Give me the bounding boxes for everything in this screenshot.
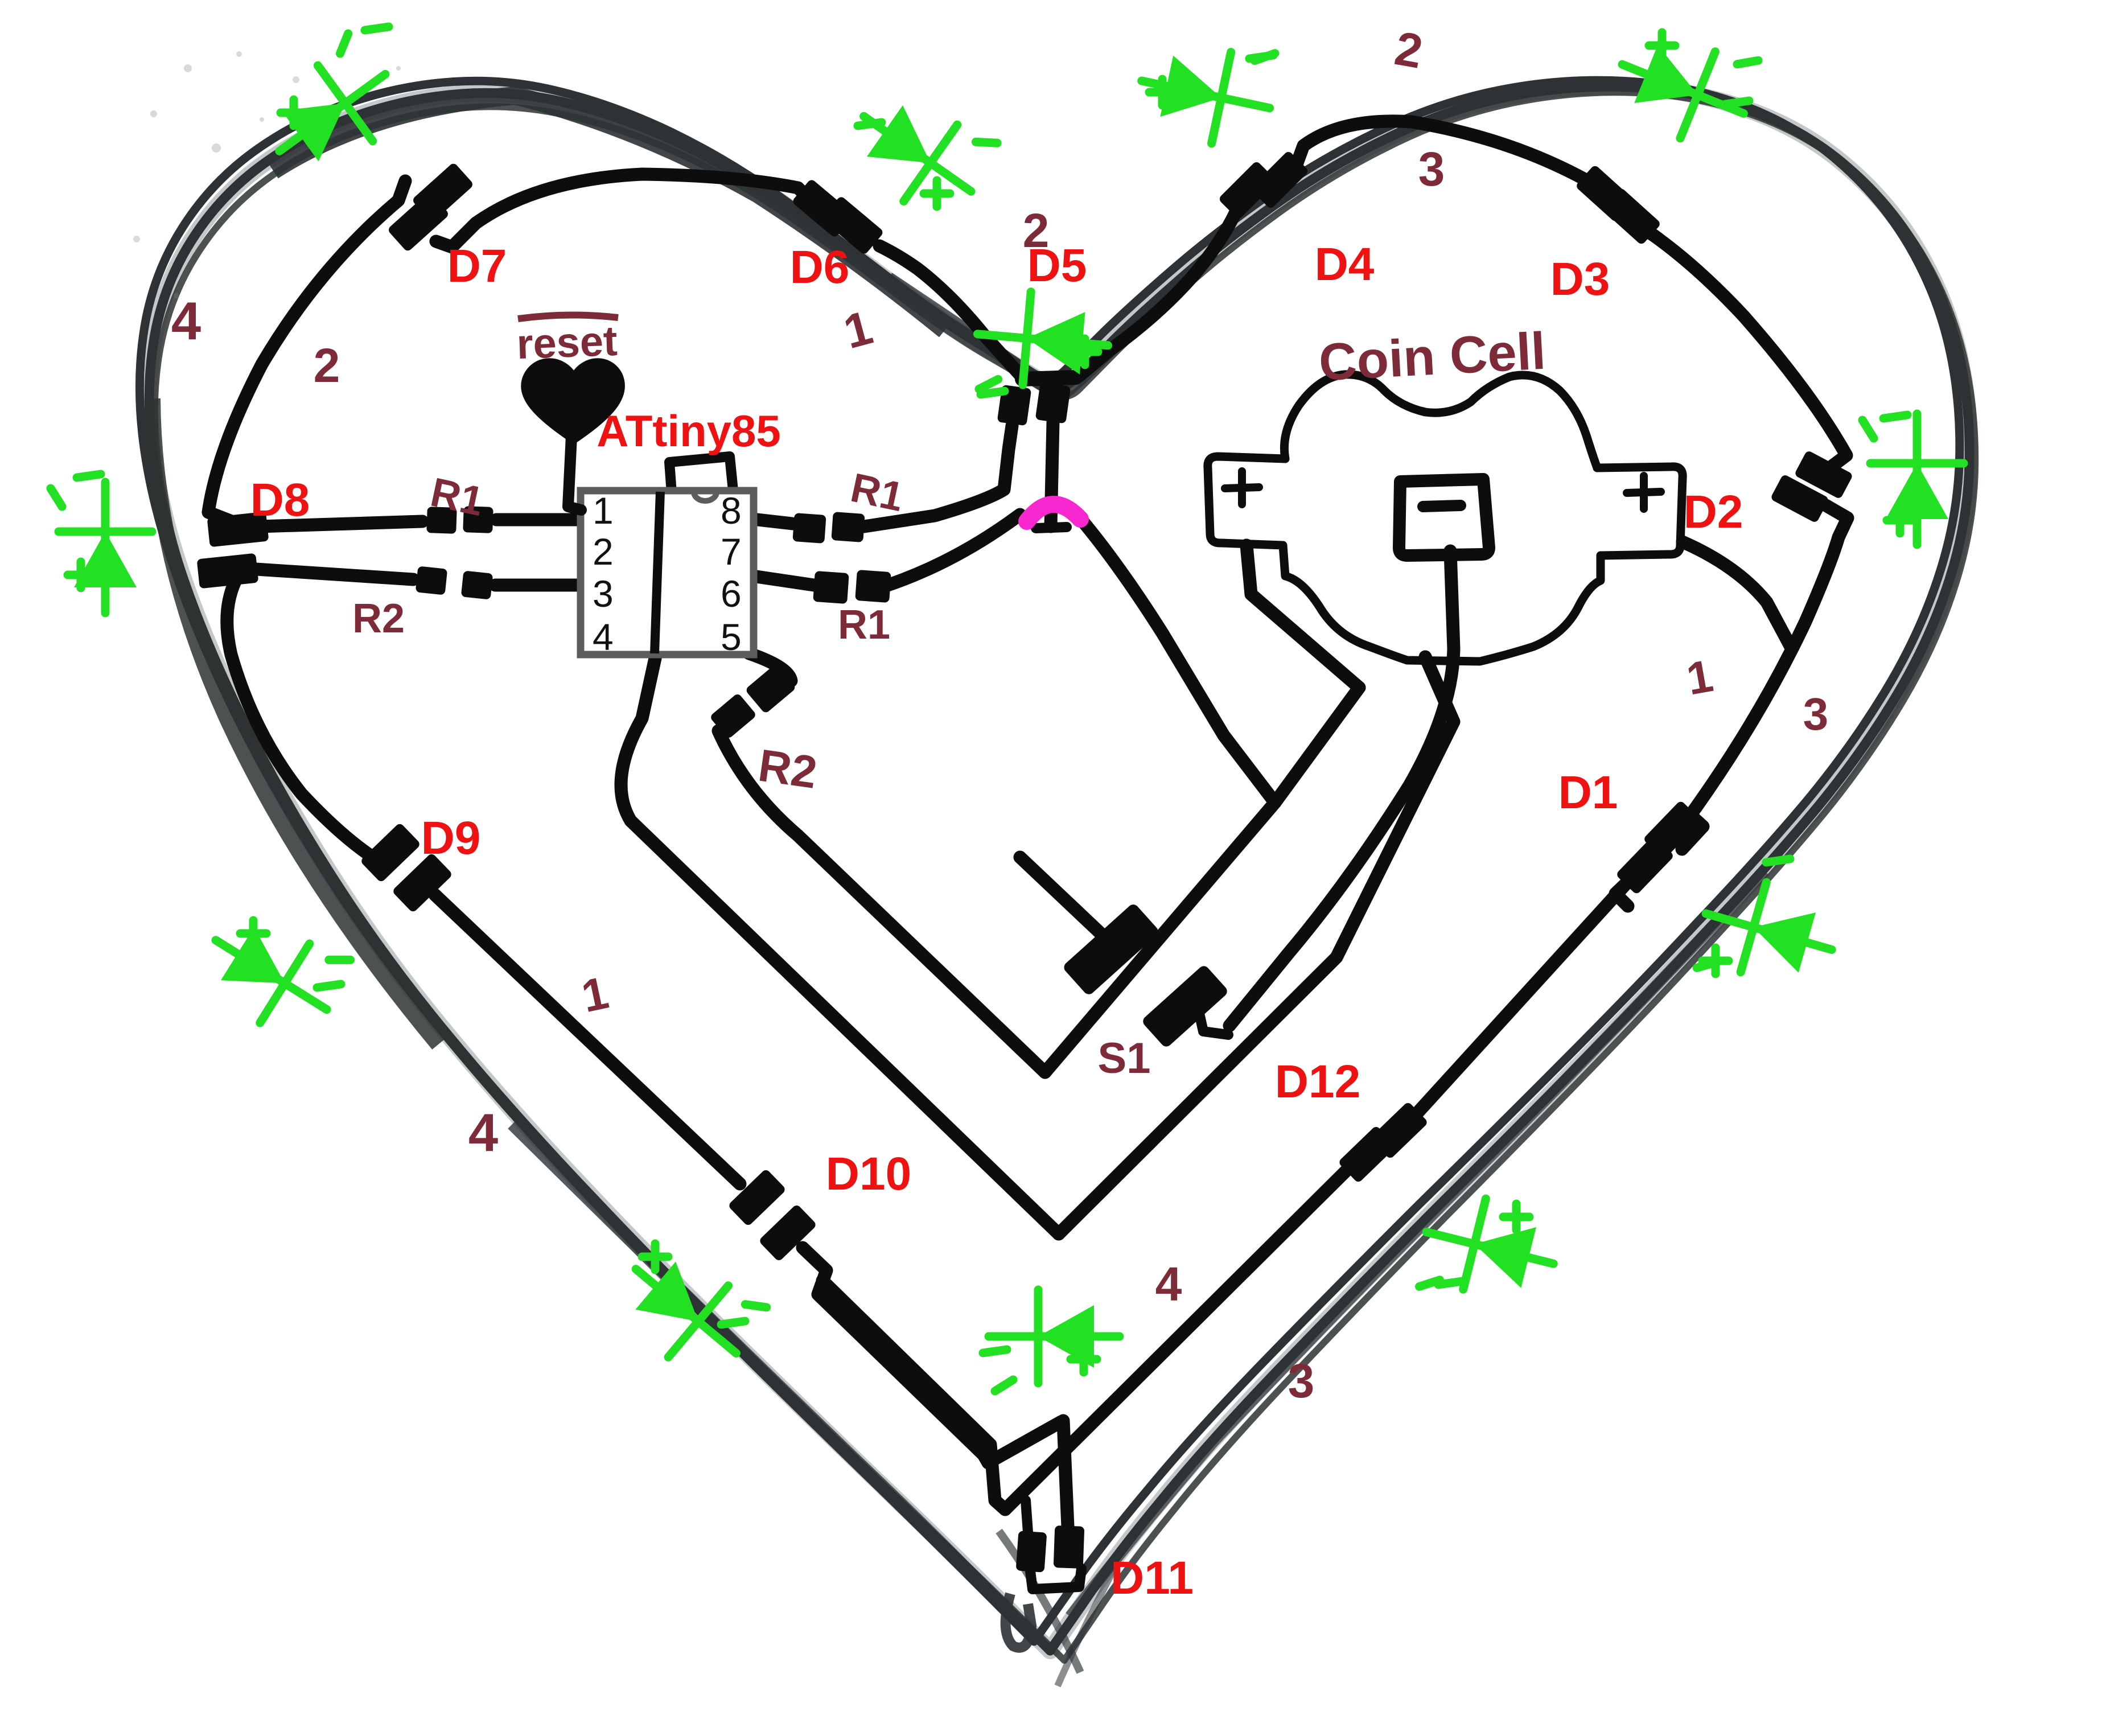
svg-text:R2: R2 xyxy=(755,740,820,798)
svg-text:6: 6 xyxy=(721,573,742,615)
svg-text:3: 3 xyxy=(1288,1354,1315,1408)
svg-text:D2: D2 xyxy=(1684,486,1743,538)
svg-text:reset: reset xyxy=(516,317,618,368)
svg-text:2: 2 xyxy=(1023,204,1050,257)
svg-text:Coin Cell: Coin Cell xyxy=(1318,322,1547,392)
svg-text:D6: D6 xyxy=(790,241,850,293)
svg-text:2: 2 xyxy=(593,530,614,573)
svg-text:D11: D11 xyxy=(1110,1552,1194,1604)
svg-text:8: 8 xyxy=(721,489,742,532)
svg-text:D1: D1 xyxy=(1558,767,1618,818)
svg-text:D12: D12 xyxy=(1275,1056,1360,1108)
svg-text:D7: D7 xyxy=(447,240,507,292)
svg-text:3: 3 xyxy=(593,573,614,615)
svg-text:4: 4 xyxy=(593,616,614,658)
svg-text:D3: D3 xyxy=(1550,253,1610,305)
svg-text:5: 5 xyxy=(721,616,742,658)
svg-text:1: 1 xyxy=(593,489,614,532)
svg-text:7: 7 xyxy=(721,530,742,573)
svg-text:D9: D9 xyxy=(421,812,481,864)
svg-text:3: 3 xyxy=(1803,689,1829,739)
svg-text:ATtiny85: ATtiny85 xyxy=(597,406,781,456)
svg-text:4: 4 xyxy=(171,291,201,351)
svg-text:S1: S1 xyxy=(1098,1034,1151,1083)
svg-text:R1: R1 xyxy=(838,602,890,648)
svg-text:4: 4 xyxy=(1155,1257,1182,1311)
svg-text:4: 4 xyxy=(468,1103,498,1162)
svg-text:D4: D4 xyxy=(1315,238,1375,290)
svg-text:R2: R2 xyxy=(352,596,405,641)
svg-text:D8: D8 xyxy=(250,474,310,526)
svg-text:D10: D10 xyxy=(826,1148,911,1200)
svg-text:3: 3 xyxy=(1418,142,1445,196)
svg-text:2: 2 xyxy=(314,339,340,392)
